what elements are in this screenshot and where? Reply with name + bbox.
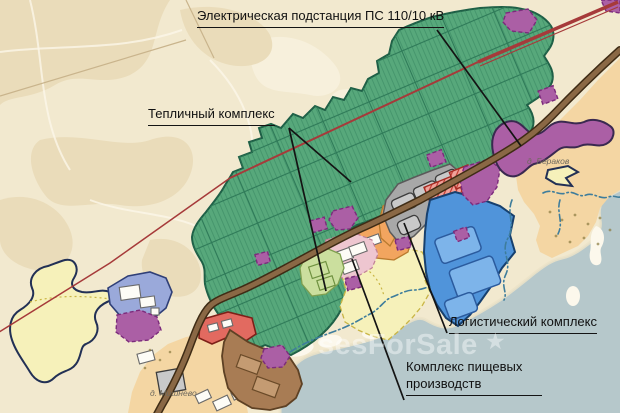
map-canvas	[0, 0, 620, 413]
substation-callout: Электрическая подстанция ПС 110/10 кВ	[197, 8, 444, 28]
watermark-text: sesForSale	[318, 329, 478, 361]
village-label-berakov: д. Бераков	[527, 156, 569, 166]
food-callout: Комплекс пищевых производств	[406, 359, 542, 396]
village-label-mishnevo: д. Мишнево	[150, 388, 197, 398]
site-plan-map: Электрическая подстанция ПС 110/10 кВ Те…	[0, 0, 620, 413]
greenhouse-callout: Тепличный комплекс	[148, 106, 275, 126]
watermark-star-icon: ★	[486, 331, 504, 353]
watermark: sesForSale ★	[318, 329, 505, 362]
